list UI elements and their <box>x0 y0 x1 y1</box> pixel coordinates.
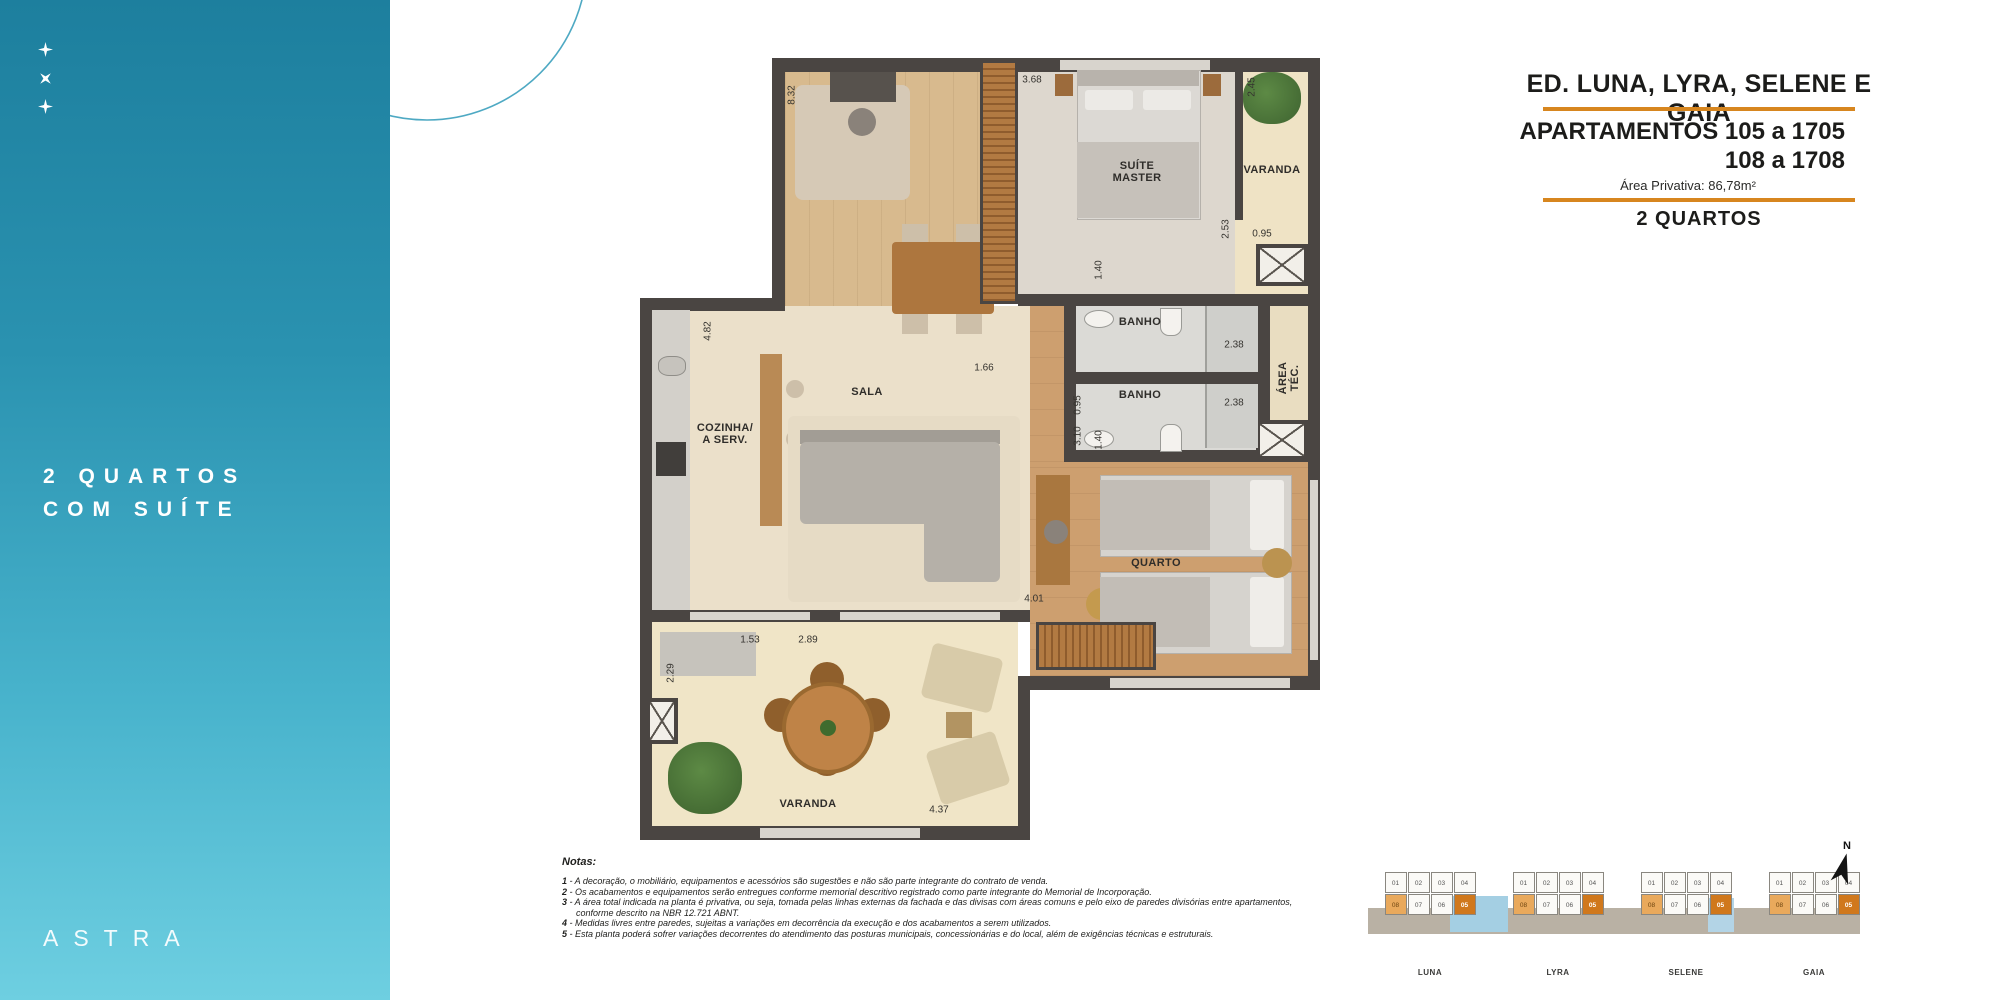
north-arrow-icon <box>1829 852 1857 886</box>
apartments-line1: APARTAMENTOS 105 a 1705 <box>1500 118 1845 146</box>
floor-plan: SUÍTE MASTERVARANDAÁREA TÉC.BANHOBANHOSA… <box>640 50 1340 850</box>
room-label: VARANDA <box>780 798 837 810</box>
room-label: COZINHA/ A SERV. <box>697 422 753 446</box>
window-segment <box>1310 480 1318 660</box>
keyplan-unit-cell: 08 <box>1385 894 1407 915</box>
measurement-label: 4.01 <box>1024 594 1043 605</box>
window-segment <box>1060 60 1210 70</box>
room-label: SUÍTE MASTER <box>1113 160 1162 184</box>
notes-list: 1 - A decoração, o mobiliário, equipamen… <box>562 876 1307 939</box>
wall-segment <box>1235 58 1243 220</box>
measurement-label: 2.29 <box>666 663 677 682</box>
suite-closet <box>980 60 1018 304</box>
measurement-label: 2.89 <box>798 635 817 646</box>
keyplan-unit-cell: 05 <box>1454 894 1476 915</box>
office-chair <box>848 108 876 136</box>
keyplan-row: 08070605 <box>1636 894 1736 916</box>
office-rug <box>795 85 910 200</box>
measurement-label: 8.32 <box>787 85 798 104</box>
keyplan-row: 08070605 <box>1380 894 1480 916</box>
toilet <box>1160 308 1182 336</box>
keyplan-unit-cell: 01 <box>1641 872 1663 893</box>
keyplan-unit-cell: 07 <box>1792 894 1814 915</box>
title-rule <box>1543 107 1855 111</box>
keyplan-unit-cell: 07 <box>1536 894 1558 915</box>
room-label: QUARTO <box>1131 557 1181 569</box>
wall-segment <box>772 58 785 306</box>
unit-type-label: 2 QUARTOS <box>1500 208 1898 231</box>
keyplan: 0102030408070605LUNA0102030408070605LYRA… <box>1368 852 1868 967</box>
keyplan-building: 0102030408070605SELENE <box>1636 872 1736 916</box>
keyplan-unit-cell: 06 <box>1431 894 1453 915</box>
quarto-wardrobe <box>1036 622 1156 670</box>
kitchen-sink <box>658 356 686 376</box>
shaft-icon <box>1256 420 1308 460</box>
keyplan-building-name: LYRA <box>1508 968 1608 977</box>
title-rule <box>1543 198 1855 202</box>
sidebar-headline: 2 QUARTOS COM SUÍTE <box>43 460 246 526</box>
notes-title: Notas: <box>562 856 1307 868</box>
north-arrow: N <box>1828 840 1858 891</box>
window-segment <box>760 828 920 838</box>
measurement-label: 1.66 <box>974 363 993 374</box>
kitchen-island <box>760 354 782 526</box>
keyplan-unit-cell: 08 <box>1769 894 1791 915</box>
shower <box>1207 384 1258 448</box>
keyplan-unit-cell: 06 <box>1815 894 1837 915</box>
sidebar: 2 QUARTOS COM SUÍTE ASTRA <box>0 0 390 1000</box>
keyplan-building: 0102030408070605LYRA <box>1508 872 1608 916</box>
plant <box>668 742 742 814</box>
shower-glass <box>1205 384 1207 448</box>
keyplan-building-name: LUNA <box>1380 968 1480 977</box>
keyplan-unit-cell: 01 <box>1769 872 1791 893</box>
bed-blanket <box>1100 480 1210 550</box>
dining-table <box>892 242 994 314</box>
wall-segment <box>640 298 652 840</box>
keyplan-building: 0102030408070605LUNA <box>1380 872 1480 916</box>
patio-side-table <box>946 712 972 738</box>
keyplan-row: 01020304 <box>1380 872 1480 894</box>
window-segment <box>840 612 1000 620</box>
keyplan-unit-cell: 01 <box>1513 872 1535 893</box>
measurement-label: 2.38 <box>1224 340 1243 351</box>
wall-segment <box>1064 372 1258 384</box>
pillow <box>1085 90 1133 110</box>
measurement-label: 4.37 <box>929 805 948 816</box>
page: 2 QUARTOS COM SUÍTE ASTRA ED. LUNA, LYRA… <box>0 0 2000 1000</box>
shaft-icon <box>646 698 678 744</box>
bath-sink <box>1084 310 1114 328</box>
table-plant <box>820 720 836 736</box>
keyplan-unit-cell: 03 <box>1431 872 1453 893</box>
stool <box>786 380 804 398</box>
keyplan-unit-cell: 07 <box>1664 894 1686 915</box>
note-item: 1 - A decoração, o mobiliário, equipamen… <box>562 876 1307 887</box>
sparkle-icon <box>38 42 53 57</box>
pillow <box>1143 90 1191 110</box>
sofa-chaise <box>924 442 1000 582</box>
suite-bed-headboard <box>1077 70 1199 86</box>
toilet <box>1160 424 1182 452</box>
keyplan-row: 01020304 <box>1636 872 1736 894</box>
note-item: 4 - Medidas livres entre paredes, sujeit… <box>562 918 1307 929</box>
measurement-label: 1.40 <box>1094 260 1105 279</box>
quarto-chair <box>1044 520 1068 544</box>
keyplan-unit-cell: 02 <box>1536 872 1558 893</box>
astra-logo: ASTRA <box>43 925 195 952</box>
keyplan-unit-cell: 08 <box>1513 894 1535 915</box>
nightstand <box>1203 74 1221 96</box>
private-area-label: Área Privativa: 86,78m² <box>1500 178 1876 193</box>
keyplan-building-name: GAIA <box>1764 968 1864 977</box>
keyplan-unit-cell: 04 <box>1710 872 1732 893</box>
keyplan-unit-cell: 06 <box>1687 894 1709 915</box>
keyplan-unit-cell: 03 <box>1687 872 1709 893</box>
keyplan-unit-cell: 07 <box>1408 894 1430 915</box>
wall-segment <box>1018 682 1030 840</box>
shaft-icon <box>1256 244 1308 286</box>
measurement-label: 1.40 <box>1094 430 1105 449</box>
pouf <box>1262 548 1292 578</box>
keyplan-unit-cell: 05 <box>1582 894 1604 915</box>
room-label: BANHO <box>1119 316 1161 328</box>
room-label: VARANDA <box>1244 164 1301 176</box>
measurement-label: 4.82 <box>703 321 714 340</box>
keyplan-unit-cell: 05 <box>1838 894 1860 915</box>
measurement-label: 2.53 <box>1221 219 1232 238</box>
measurement-label: 3.10 <box>1073 426 1084 445</box>
keyplan-unit-cell: 03 <box>1559 872 1581 893</box>
office-desk <box>830 72 896 102</box>
measurement-label: 0.95 <box>1252 229 1271 240</box>
window-segment <box>1110 678 1290 688</box>
hallway-floor <box>1030 306 1064 462</box>
sparkle-x-icon <box>35 68 56 89</box>
north-label: N <box>1836 840 1858 852</box>
keyplan-unit-cell: 08 <box>1641 894 1663 915</box>
keyplan-unit-cell: 02 <box>1408 872 1430 893</box>
shower-glass <box>1205 306 1207 372</box>
notes-block: Notas: 1 - A decoração, o mobiliário, eq… <box>562 856 1307 939</box>
room-label: ÁREA TÉC. <box>1277 353 1301 404</box>
keyplan-unit-cell: 06 <box>1559 894 1581 915</box>
keyplan-unit-cell: 01 <box>1385 872 1407 893</box>
keyplan-building-name: SELENE <box>1636 968 1736 977</box>
keyplan-unit-cell: 02 <box>1792 872 1814 893</box>
pillow <box>1250 577 1284 647</box>
stove <box>656 442 686 476</box>
nightstand <box>1055 74 1073 96</box>
note-item: 5 - Esta planta poderá sofrer variações … <box>562 929 1307 940</box>
keyplan-row: 01020304 <box>1508 872 1608 894</box>
sparkle-icon <box>38 99 53 114</box>
measurement-label: 0.95 <box>1073 395 1084 414</box>
room-label: BANHO <box>1119 389 1161 401</box>
room-label: SALA <box>851 386 883 398</box>
window-segment <box>690 612 810 620</box>
measurement-label: 2.45 <box>1247 77 1258 96</box>
measurement-label: 2.38 <box>1224 398 1243 409</box>
note-item: 2 - Os acabamentos e equipamentos serão … <box>562 887 1307 898</box>
measurement-label: 1.53 <box>740 635 759 646</box>
measurement-label: 3.68 <box>1022 75 1041 86</box>
keyplan-unit-cell: 05 <box>1710 894 1732 915</box>
keyplan-unit-cell: 04 <box>1454 872 1476 893</box>
keyplan-unit-cell: 02 <box>1664 872 1686 893</box>
keyplan-row: 08070605 <box>1764 894 1864 916</box>
apartments-line2: 108 a 1708 <box>1500 147 1845 175</box>
keyplan-row: 08070605 <box>1508 894 1608 916</box>
note-item: 3 - A área total indicada na planta é pr… <box>562 897 1307 918</box>
pillow <box>1250 480 1284 550</box>
keyplan-unit-cell: 04 <box>1582 872 1604 893</box>
